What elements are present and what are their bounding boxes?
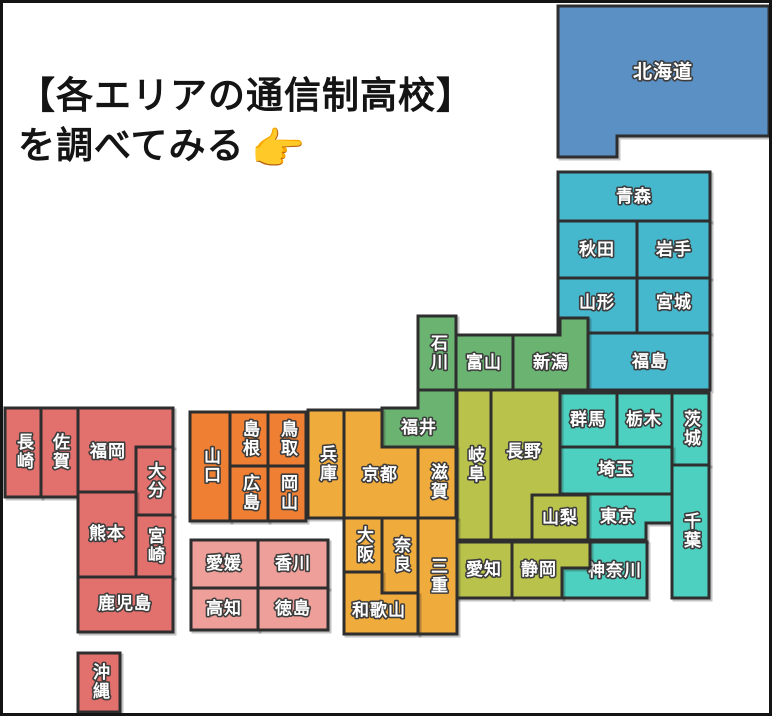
svg-text:大分: 大分 xyxy=(144,461,165,500)
title-line-1: 【各エリアの通信制高校】 xyxy=(18,72,474,121)
pref-tile-gunma: 群馬 xyxy=(560,393,617,447)
svg-text:広島: 広島 xyxy=(239,473,260,512)
svg-text:秋田: 秋田 xyxy=(579,239,615,260)
svg-text:岡山: 岡山 xyxy=(277,474,297,512)
pref-tile-nara: 奈良 xyxy=(382,518,418,593)
svg-text:鹿児島: 鹿児島 xyxy=(98,593,152,614)
svg-text:東京: 東京 xyxy=(600,506,636,527)
svg-text:愛知: 愛知 xyxy=(466,559,502,580)
pref-tile-yamanashi: 山梨 xyxy=(532,495,588,540)
pref-tile-miyazaki: 宮崎 xyxy=(136,515,173,577)
svg-text:埼玉: 埼玉 xyxy=(598,459,634,480)
svg-text:北海道: 北海道 xyxy=(633,60,693,83)
pref-tile-fukushima: 福島 xyxy=(588,333,710,390)
svg-text:山梨: 山梨 xyxy=(542,507,578,528)
pref-tile-gifu: 岐阜 xyxy=(457,390,491,540)
pref-tile-osaka: 大阪 xyxy=(344,518,382,572)
svg-text:愛媛: 愛媛 xyxy=(206,553,242,574)
pref-tile-tottori: 鳥取 xyxy=(268,412,306,466)
svg-text:香川: 香川 xyxy=(275,554,311,574)
svg-text:石川: 石川 xyxy=(427,334,449,372)
svg-text:山口: 山口 xyxy=(200,447,220,485)
pref-tile-fukui: 福井 xyxy=(382,390,456,447)
pref-tile-okinawa: 沖縄 xyxy=(78,653,120,712)
svg-text:兵庫: 兵庫 xyxy=(316,444,337,483)
pref-tile-tochigi: 栃木 xyxy=(617,393,672,447)
pref-tile-kagoshima: 鹿児島 xyxy=(78,577,173,632)
svg-text:神奈川: 神奈川 xyxy=(588,560,642,581)
svg-text:山形: 山形 xyxy=(579,292,615,313)
svg-text:三重: 三重 xyxy=(427,557,448,595)
pref-tile-tokushima: 徳島 xyxy=(258,588,328,630)
svg-text:大阪: 大阪 xyxy=(353,525,374,564)
svg-text:滋賀: 滋賀 xyxy=(427,462,449,501)
pref-tile-aomori: 青森 xyxy=(558,172,710,221)
pref-tile-toyama: 富山 xyxy=(456,335,513,390)
pref-tile-kumamoto: 熊本 xyxy=(78,492,136,577)
title-line-2: を調べてみる👉 xyxy=(18,121,474,179)
svg-text:徳島: 徳島 xyxy=(274,598,311,619)
pref-tile-aichi: 愛知 xyxy=(457,542,512,598)
pref-tile-oita: 大分 xyxy=(136,447,173,515)
svg-text:奈良: 奈良 xyxy=(390,535,412,574)
svg-text:岩手: 岩手 xyxy=(655,239,692,260)
pref-tile-saitama: 埼玉 xyxy=(560,447,672,494)
svg-text:長崎: 長崎 xyxy=(13,433,34,471)
svg-text:青森: 青森 xyxy=(616,186,652,207)
svg-text:長野: 長野 xyxy=(506,442,542,462)
svg-text:千葉: 千葉 xyxy=(680,512,702,550)
pref-tile-miyagi: 宮城 xyxy=(637,278,710,333)
pref-tile-mie: 三重 xyxy=(418,518,457,634)
pref-tile-akita: 秋田 xyxy=(558,221,637,278)
pref-tile-kochi: 高知 xyxy=(191,588,258,630)
svg-text:和歌山: 和歌山 xyxy=(352,600,406,621)
infographic-canvas: 【各エリアの通信制高校】 を調べてみる👉 北海道 青森 秋田 岩手 山形 宮城 xyxy=(0,0,772,716)
pref-tile-saga: 佐賀 xyxy=(41,408,78,497)
pref-tile-niigata: 新潟 xyxy=(513,318,588,390)
svg-text:佐賀: 佐賀 xyxy=(49,432,71,471)
svg-text:高知: 高知 xyxy=(206,598,242,619)
pointing-right-icon: 👉 xyxy=(251,124,306,175)
svg-text:鳥取: 鳥取 xyxy=(277,419,298,458)
title-line-2-text: を調べてみる xyxy=(18,124,245,167)
pref-tile-ibaraki: 茨城 xyxy=(672,393,709,465)
pref-tile-nagasaki: 長崎 xyxy=(5,408,41,497)
svg-text:栃木: 栃木 xyxy=(626,409,662,430)
pref-tile-shimane: 島根 xyxy=(230,412,268,466)
svg-text:茨城: 茨城 xyxy=(680,409,701,448)
pref-tile-hyogo: 兵庫 xyxy=(308,410,344,518)
svg-text:宮城: 宮城 xyxy=(656,292,692,313)
svg-text:島根: 島根 xyxy=(239,419,260,458)
pref-tile-okayama: 岡山 xyxy=(268,466,306,521)
pref-tile-ehime: 愛媛 xyxy=(191,540,258,588)
svg-text:岐阜: 岐阜 xyxy=(464,445,485,484)
pref-tile-hiroshima: 広島 xyxy=(230,466,268,521)
pref-tile-chiba: 千葉 xyxy=(672,465,709,598)
pref-tile-hokkaido: 北海道 xyxy=(558,6,769,157)
pref-tile-iwate: 岩手 xyxy=(637,221,710,278)
svg-text:新潟: 新潟 xyxy=(533,352,569,373)
pref-tile-shiga: 滋賀 xyxy=(418,447,456,518)
svg-text:富山: 富山 xyxy=(466,352,502,373)
svg-text:京都: 京都 xyxy=(362,464,398,485)
svg-text:福井: 福井 xyxy=(400,417,437,438)
svg-text:宮崎: 宮崎 xyxy=(144,526,165,565)
svg-text:福島: 福島 xyxy=(631,351,668,372)
page-title: 【各エリアの通信制高校】 を調べてみる👉 xyxy=(18,72,474,179)
pref-tile-yamaguchi: 山口 xyxy=(190,412,230,521)
svg-text:熊本: 熊本 xyxy=(89,523,125,544)
pref-tile-ishikawa: 石川 xyxy=(418,316,456,390)
pref-tile-kagawa: 香川 xyxy=(258,540,328,588)
svg-text:静岡: 静岡 xyxy=(521,559,557,580)
svg-text:福岡: 福岡 xyxy=(89,441,126,462)
pref-tile-tokyo: 東京 xyxy=(588,494,672,540)
svg-text:群馬: 群馬 xyxy=(570,409,606,430)
svg-text:沖縄: 沖縄 xyxy=(89,662,110,701)
